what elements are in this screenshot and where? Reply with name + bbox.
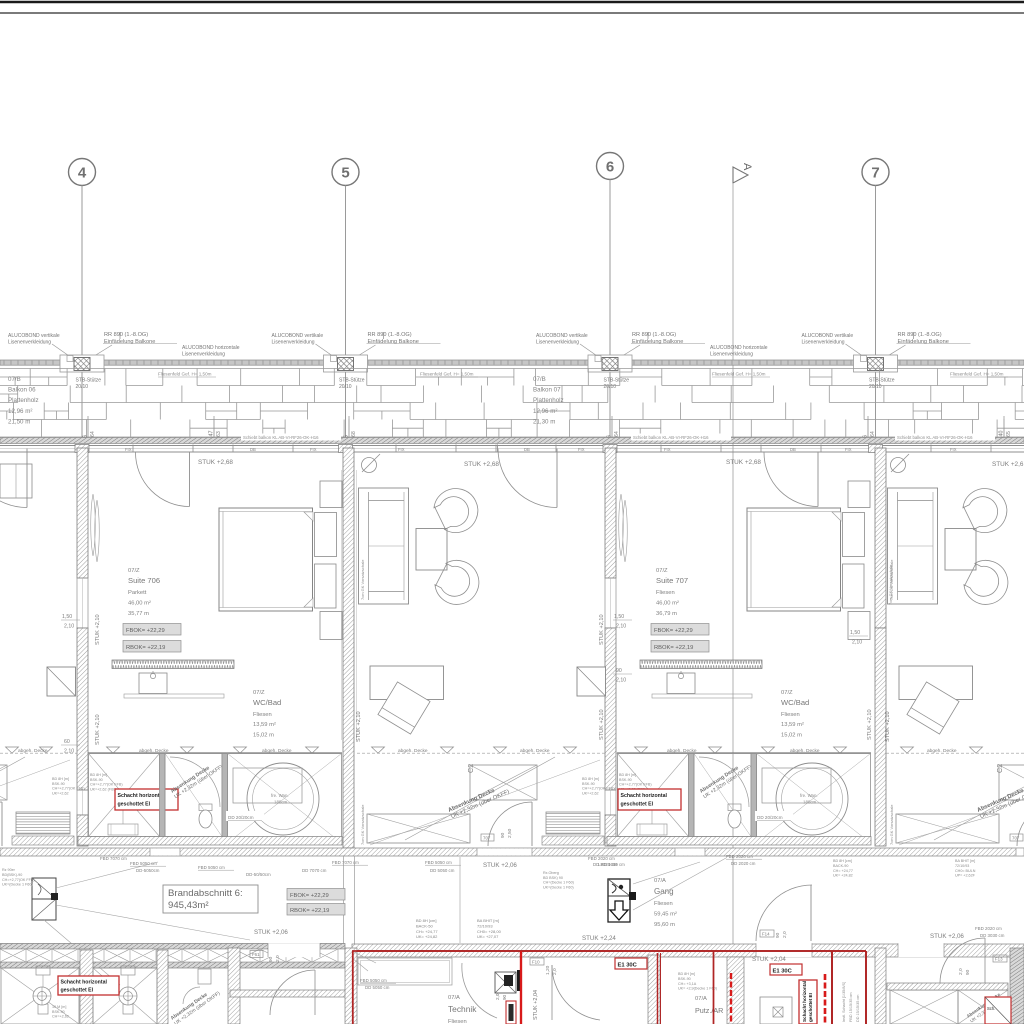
svg-text:07/B: 07/B bbox=[8, 376, 21, 383]
svg-text:Plattenholz: Plattenholz bbox=[8, 397, 39, 404]
svg-text:STUK +2,10: STUK +2,10 bbox=[599, 614, 605, 645]
svg-text:BD 8H [m]: BD 8H [m] bbox=[678, 972, 695, 976]
svg-text:FIX: FIX bbox=[398, 447, 405, 452]
svg-text:UK=+2,62: UK=+2,62 bbox=[582, 791, 599, 795]
svg-text:7cm GK Vorsatzschale: 7cm GK Vorsatzschale bbox=[889, 804, 894, 845]
svg-text:Brandabschnitt 6:: Brandabschnitt 6: bbox=[168, 888, 243, 899]
svg-text:abgeh. Decke: abgeh. Decke bbox=[520, 748, 550, 754]
svg-text:12,96 m²: 12,96 m² bbox=[8, 408, 32, 415]
svg-text:Einfädelung Balkone: Einfädelung Balkone bbox=[632, 339, 683, 345]
svg-text:Schacht horizontal: Schacht horizontal bbox=[621, 793, 668, 799]
svg-text:FBD 5050 cm: FBD 5050 cm bbox=[360, 978, 387, 983]
svg-text:BD 8H [m]: BD 8H [m] bbox=[52, 777, 69, 781]
svg-text:Fliesen: Fliesen bbox=[654, 901, 673, 907]
svg-text:20/10: 20/10 bbox=[339, 384, 352, 390]
svg-text:BD 8H [m]: BD 8H [m] bbox=[619, 773, 636, 777]
svg-text:2,0: 2,0 bbox=[958, 968, 964, 975]
svg-text:abgeh. Decke: abgeh. Decke bbox=[398, 748, 428, 754]
svg-text:Lisenenverkleidung: Lisenenverkleidung bbox=[710, 351, 753, 357]
svg-text:BSK-90: BSK-90 bbox=[678, 977, 691, 981]
svg-text:UK=(Decke 1 F60): UK=(Decke 1 F60) bbox=[543, 885, 574, 889]
svg-text:Lisenenverkleidung: Lisenenverkleidung bbox=[182, 351, 225, 357]
svg-text:DB: DB bbox=[790, 447, 796, 452]
svg-text:07/A: 07/A bbox=[695, 996, 707, 1002]
svg-text:90: 90 bbox=[500, 832, 506, 838]
svg-text:21,50 m: 21,50 m bbox=[8, 418, 30, 425]
svg-text:BSK-90: BSK-90 bbox=[582, 782, 595, 786]
svg-text:Fliesenfeld Gef. H= 1,50m: Fliesenfeld Gef. H= 1,50m bbox=[950, 372, 1004, 377]
svg-text:945,43m²: 945,43m² bbox=[168, 900, 209, 911]
svg-text:UK= +27,07: UK= +27,07 bbox=[477, 934, 499, 939]
svg-text:20/10: 20/10 bbox=[76, 384, 89, 390]
svg-text:CH=(Decke 1 F60): CH=(Decke 1 F60) bbox=[543, 881, 574, 885]
svg-text:UK=+2,62 (F60): UK=+2,62 (F60) bbox=[90, 787, 116, 791]
svg-text:2,10: 2,10 bbox=[852, 640, 862, 646]
svg-text:Einfädelung Balkone: Einfädelung Balkone bbox=[898, 339, 949, 345]
svg-text:Balkon 07: Balkon 07 bbox=[533, 387, 561, 394]
svg-text:DD 5050 cm: DD 5050 cm bbox=[430, 868, 455, 873]
svg-text:STUK +2,10: STUK +2,10 bbox=[867, 709, 873, 740]
svg-text:RBOK= +22,19: RBOK= +22,19 bbox=[654, 645, 693, 651]
svg-text:35,77 m: 35,77 m bbox=[128, 611, 149, 617]
svg-text:20/10: 20/10 bbox=[869, 384, 882, 390]
svg-text:Plattenholz: Plattenholz bbox=[533, 397, 564, 404]
svg-text:FIX: FIX bbox=[950, 447, 957, 452]
svg-text:fre. Wan.: fre. Wan. bbox=[800, 793, 818, 798]
svg-text:BA BHIT [m]: BA BHIT [m] bbox=[477, 918, 499, 923]
svg-text:20/10: 20/10 bbox=[604, 384, 617, 390]
svg-text:2,10: 2,10 bbox=[64, 624, 74, 630]
svg-text:2,10: 2,10 bbox=[616, 678, 626, 684]
svg-text:STUK +2,68: STUK +2,68 bbox=[726, 459, 761, 466]
svg-text:ALUCOBOND horizontale: ALUCOBOND horizontale bbox=[182, 345, 240, 351]
svg-text:07/B: 07/B bbox=[533, 376, 546, 383]
svg-text:BD 8H [m]: BD 8H [m] bbox=[90, 773, 107, 777]
svg-text:CH=+2,77(OK FFB): CH=+2,77(OK FFB) bbox=[619, 783, 652, 787]
svg-text:geschottet EI: geschottet EI bbox=[808, 993, 813, 1022]
svg-text:ALUCOBOND vertikale: ALUCOBOND vertikale bbox=[272, 333, 324, 339]
svg-text:ALUCOBOND horizontale: ALUCOBOND horizontale bbox=[710, 345, 768, 351]
svg-text:2,0: 2,0 bbox=[275, 955, 281, 962]
svg-text:Lisenenverkleidung: Lisenenverkleidung bbox=[802, 339, 845, 345]
svg-text:DD 5050 cm: DD 5050 cm bbox=[365, 985, 390, 990]
svg-text:07/A: 07/A bbox=[654, 878, 666, 884]
svg-text:Schiebt balkon KL AB-VI-RF26-O: Schiebt balkon KL AB-VI-RF26-OK-H16 bbox=[633, 435, 709, 440]
svg-text:07/Z: 07/Z bbox=[253, 690, 265, 696]
svg-text:STB-Stütze: STB-Stütze bbox=[869, 378, 895, 384]
svg-text:FBOK= +22,29: FBOK= +22,29 bbox=[126, 628, 165, 634]
svg-text:2,50: 2,50 bbox=[507, 828, 513, 838]
svg-text:FIX: FIX bbox=[664, 447, 671, 452]
svg-text:STB-Stütze: STB-Stütze bbox=[339, 378, 365, 384]
svg-text:Technik: Technik bbox=[448, 1004, 477, 1014]
svg-text:BD BSK) 90: BD BSK) 90 bbox=[543, 876, 563, 880]
svg-text:FBD 15/15/35 cm: FBD 15/15/35 cm bbox=[849, 992, 853, 1022]
svg-text:FBD 5050 cm: FBD 5050 cm bbox=[130, 861, 157, 866]
svg-text:BACK-50: BACK-50 bbox=[416, 923, 433, 928]
svg-text:RR 890 (1.-8.OG): RR 890 (1.-8.OG) bbox=[104, 332, 148, 338]
svg-text:UK=+2,62: UK=+2,62 bbox=[52, 791, 69, 795]
svg-text:UK= +24,82: UK= +24,82 bbox=[833, 874, 853, 878]
svg-text:12,96 m²: 12,96 m² bbox=[533, 408, 557, 415]
svg-text:Rz 90er: Rz 90er bbox=[2, 868, 16, 872]
svg-text:RBOK= +22,19: RBOK= +22,19 bbox=[290, 908, 329, 914]
svg-text:ALUCOBOND vertikale: ALUCOBOND vertikale bbox=[802, 333, 854, 339]
svg-text:STUK +2,06: STUK +2,06 bbox=[930, 933, 964, 940]
svg-text:Sch.: Sch. bbox=[987, 1006, 995, 1011]
svg-text:FBD 2020 cm: FBD 2020 cm bbox=[726, 854, 753, 859]
svg-text:BSK-90: BSK-90 bbox=[52, 1010, 65, 1014]
svg-text:07/A: 07/A bbox=[448, 995, 460, 1001]
svg-text:CH= +3,1A: CH= +3,1A bbox=[678, 982, 697, 986]
svg-text:RR 890 (1.-8.OG): RR 890 (1.-8.OG) bbox=[898, 332, 942, 338]
svg-text:90: 90 bbox=[775, 932, 781, 938]
svg-text:Fliesen: Fliesen bbox=[253, 712, 272, 718]
svg-text:72/10/93: 72/10/93 bbox=[955, 864, 969, 868]
svg-text:7: 7 bbox=[871, 165, 879, 182]
svg-text:STB-Stütze: STB-Stütze bbox=[76, 378, 102, 384]
svg-text:Suite 707: Suite 707 bbox=[656, 576, 688, 585]
svg-text:DD-50/50cm: DD-50/50cm bbox=[246, 872, 271, 877]
svg-text:36,79 m: 36,79 m bbox=[656, 611, 677, 617]
svg-text:Einfädelung Balkone: Einfädelung Balkone bbox=[368, 339, 419, 345]
svg-text:geschottet EI: geschottet EI bbox=[118, 802, 151, 808]
svg-text:fre. Wan.: fre. Wan. bbox=[271, 793, 289, 798]
svg-text:STB-Stütze: STB-Stütze bbox=[604, 378, 630, 384]
svg-text:15,02 m: 15,02 m bbox=[781, 732, 802, 738]
svg-text:STUK +2,06: STUK +2,06 bbox=[254, 929, 288, 936]
svg-text:Rx.Oberg: Rx.Oberg bbox=[543, 871, 559, 875]
svg-text:CH= +24,77: CH= +24,77 bbox=[833, 869, 853, 873]
svg-text:geschottet EI: geschottet EI bbox=[61, 988, 94, 994]
svg-text:CH=+2,77(OK FFB): CH=+2,77(OK FFB) bbox=[2, 878, 35, 882]
svg-text:FBD 5050 cm: FBD 5050 cm bbox=[198, 865, 225, 870]
svg-text:Fliesenfeld Gef. H= 1,50m: Fliesenfeld Gef. H= 1,50m bbox=[420, 372, 474, 377]
svg-text:CH=+2,62: CH=+2,62 bbox=[52, 1015, 69, 1019]
svg-text:FIX: FIX bbox=[845, 447, 852, 452]
svg-text:BD 8H [cm]: BD 8H [cm] bbox=[833, 859, 852, 863]
svg-text:BSK-90: BSK-90 bbox=[90, 778, 103, 782]
svg-text:WC/Bad: WC/Bad bbox=[253, 698, 281, 707]
svg-text:Fliesen: Fliesen bbox=[448, 1019, 467, 1024]
svg-text:46,00 m²: 46,00 m² bbox=[656, 601, 679, 607]
svg-text:DD 7070 cm: DD 7070 cm bbox=[302, 868, 327, 873]
svg-text:FIX: FIX bbox=[310, 447, 317, 452]
svg-text:2,0: 2,0 bbox=[495, 993, 500, 1000]
svg-text:FBD 7070 cm: FBD 7070 cm bbox=[332, 860, 359, 865]
svg-text:1,50: 1,50 bbox=[614, 614, 624, 620]
svg-text:UK=(Decke 1 F60): UK=(Decke 1 F60) bbox=[2, 883, 33, 887]
svg-text:CH=+2,77(OK FFB): CH=+2,77(OK FFB) bbox=[582, 787, 615, 791]
svg-text:F13: F13 bbox=[995, 957, 1003, 962]
svg-text:RR 890 (1.-8.OG): RR 890 (1.-8.OG) bbox=[632, 332, 676, 338]
svg-text:Schiebt balkon KL AB-VI-RF26-O: Schiebt balkon KL AB-VI-RF26-OK-H16 bbox=[897, 435, 973, 440]
svg-text:STUK +2,68: STUK +2,68 bbox=[198, 459, 233, 466]
svg-text:13,59 m²: 13,59 m² bbox=[253, 722, 276, 728]
svg-text:DD 3030 cm: DD 3030 cm bbox=[980, 933, 1005, 938]
svg-text:2,0: 2,0 bbox=[552, 968, 558, 975]
svg-text:abgeh. Decke: abgeh. Decke bbox=[18, 748, 48, 754]
svg-text:7cm GK Vorsatzschale: 7cm GK Vorsatzschale bbox=[360, 804, 365, 845]
svg-text:Suite 706: Suite 706 bbox=[128, 576, 160, 585]
svg-text:60: 60 bbox=[64, 739, 70, 745]
svg-text:10 M [m]: 10 M [m] bbox=[52, 1005, 66, 1009]
svg-text:STUK +2,10: STUK +2,10 bbox=[885, 711, 891, 742]
svg-text:F61: F61 bbox=[252, 952, 260, 957]
svg-text:707: 707 bbox=[1012, 836, 1020, 841]
svg-text:Schacht horizontal: Schacht horizontal bbox=[118, 793, 165, 799]
svg-text:90: 90 bbox=[965, 969, 971, 975]
svg-text:CH0= BULN: CH0= BULN bbox=[955, 869, 976, 873]
svg-text:2,10: 2,10 bbox=[64, 749, 74, 755]
svg-text:BA BHIT [m]: BA BHIT [m] bbox=[955, 859, 975, 863]
svg-text:46,00 m²: 46,00 m² bbox=[128, 601, 151, 607]
svg-text:90: 90 bbox=[616, 668, 622, 674]
svg-text:RR 890 (1.-8.OG): RR 890 (1.-8.OG) bbox=[368, 332, 412, 338]
svg-text:FBD 5050 cm: FBD 5050 cm bbox=[425, 860, 452, 865]
svg-text:CH=+2,77(OK FFB): CH=+2,77(OK FFB) bbox=[52, 787, 85, 791]
svg-text:DB: DB bbox=[524, 447, 530, 452]
svg-text:BACK-90: BACK-90 bbox=[833, 864, 848, 868]
svg-text:STUK +2,04: STUK +2,04 bbox=[752, 956, 786, 963]
svg-text:6: 6 bbox=[606, 159, 614, 176]
svg-text:Fliesen: Fliesen bbox=[781, 712, 800, 718]
svg-text:90: 90 bbox=[502, 994, 507, 1000]
svg-text:72/10/93: 72/10/93 bbox=[477, 923, 493, 928]
svg-text:ALUCOBOND vertikale: ALUCOBOND vertikale bbox=[536, 333, 588, 339]
svg-text:07/Z: 07/Z bbox=[781, 690, 793, 696]
svg-text:59,45 m²: 59,45 m² bbox=[654, 911, 677, 917]
svg-text:7cm GK Vorsatzschale: 7cm GK Vorsatzschale bbox=[888, 564, 893, 605]
svg-text:STUK +2,10: STUK +2,10 bbox=[95, 714, 101, 745]
svg-text:UK= +2,9(Decke 1 F60): UK= +2,9(Decke 1 F60) bbox=[678, 987, 717, 991]
svg-text:5: 5 bbox=[341, 165, 349, 182]
svg-text:BD(BSK)-90: BD(BSK)-90 bbox=[2, 873, 22, 877]
svg-text:UK= +24,82: UK= +24,82 bbox=[416, 934, 438, 939]
svg-text:FBOK= +22,29: FBOK= +22,29 bbox=[654, 628, 693, 634]
svg-text:Gang: Gang bbox=[654, 887, 674, 896]
svg-text:BD 8H [m]: BD 8H [m] bbox=[582, 777, 599, 781]
svg-text:E1 30C: E1 30C bbox=[618, 963, 638, 969]
svg-text:DD 20/20cm: DD 20/20cm bbox=[757, 815, 783, 820]
svg-text:7cm GK Vorsatzschale: 7cm GK Vorsatzschale bbox=[360, 559, 365, 600]
svg-text:FBD 7070 cm: FBD 7070 cm bbox=[100, 856, 127, 861]
svg-text:Parkett: Parkett bbox=[128, 590, 147, 596]
svg-text:CH=+2,77(OK FFB): CH=+2,77(OK FFB) bbox=[90, 783, 123, 787]
svg-text:DD 2020 cm: DD 2020 cm bbox=[731, 861, 756, 866]
svg-text:UP= +2,62F: UP= +2,62F bbox=[955, 874, 976, 878]
svg-text:F14: F14 bbox=[762, 932, 770, 937]
svg-text:FIX: FIX bbox=[125, 447, 132, 452]
svg-text:95,60 m: 95,60 m bbox=[654, 922, 675, 928]
svg-text:STUK +2,10: STUK +2,10 bbox=[95, 614, 101, 645]
svg-text:WC/Bad: WC/Bad bbox=[781, 698, 809, 707]
svg-text:FBOK= +22,29: FBOK= +22,29 bbox=[290, 893, 329, 899]
svg-text:2,0: 2,0 bbox=[782, 931, 788, 938]
svg-text:Putz./AR: Putz./AR bbox=[695, 1006, 723, 1015]
svg-text:DD 20/20cm: DD 20/20cm bbox=[228, 815, 254, 820]
svg-text:07/Z: 07/Z bbox=[128, 568, 140, 574]
svg-text:21,30 m: 21,30 m bbox=[533, 418, 555, 425]
svg-text:1,50: 1,50 bbox=[850, 630, 860, 636]
svg-text:STUK +2,10: STUK +2,10 bbox=[599, 709, 605, 740]
svg-text:CH= +24,77: CH= +24,77 bbox=[416, 929, 438, 934]
svg-text:abgeh. Decke: abgeh. Decke bbox=[927, 748, 957, 754]
svg-text:Lisenenverkleidung: Lisenenverkleidung bbox=[8, 339, 51, 345]
svg-text:1,20: 1,20 bbox=[545, 965, 551, 975]
svg-text:Balkon 06: Balkon 06 bbox=[8, 387, 36, 394]
svg-text:DD 2020 cm: DD 2020 cm bbox=[593, 862, 618, 867]
svg-text:geschottet EI: geschottet EI bbox=[621, 802, 654, 808]
svg-text:DD-5050cm: DD-5050cm bbox=[136, 868, 160, 873]
svg-text:07/Z: 07/Z bbox=[656, 568, 668, 574]
svg-text:BD 8H [cm]: BD 8H [cm] bbox=[416, 918, 436, 923]
svg-text:STUK +2,04: STUK +2,04 bbox=[533, 990, 539, 1020]
svg-text:1,50: 1,50 bbox=[62, 614, 72, 620]
svg-text:Schiebt balkon KL AB-VI-RF26-O: Schiebt balkon KL AB-VI-RF26-OK-H16 bbox=[243, 435, 319, 440]
svg-text:13,59 m²: 13,59 m² bbox=[781, 722, 804, 728]
svg-text:Fliesenfeld Gef. H= 1,50m: Fliesenfeld Gef. H= 1,50m bbox=[712, 372, 766, 377]
svg-text:FBD 2020 cm: FBD 2020 cm bbox=[975, 926, 1002, 931]
svg-text:CH0= +28,00: CH0= +28,00 bbox=[477, 929, 502, 934]
svg-text:STUK +2,68: STUK +2,68 bbox=[464, 461, 499, 468]
svg-text:180cm: 180cm bbox=[274, 800, 288, 805]
svg-text:Fliesen: Fliesen bbox=[656, 590, 675, 596]
svg-text:BSK-90: BSK-90 bbox=[52, 782, 65, 786]
svg-text:RBOK= +22,19: RBOK= +22,19 bbox=[126, 645, 165, 651]
svg-text:Schacht horizontal: Schacht horizontal bbox=[61, 980, 108, 986]
svg-text:707: 707 bbox=[483, 836, 491, 841]
svg-text:ALUCOBOND vertikale: ALUCOBOND vertikale bbox=[8, 333, 60, 339]
svg-text:2,10: 2,10 bbox=[616, 624, 626, 630]
svg-text:Lisenenverkleidung: Lisenenverkleidung bbox=[272, 339, 315, 345]
svg-text:STUK +2,6: STUK +2,6 bbox=[992, 461, 1024, 468]
svg-text:Schacht horizontal: Schacht horizontal bbox=[802, 981, 807, 1022]
svg-text:Einfädelung Balkone: Einfädelung Balkone bbox=[104, 339, 155, 345]
svg-text:15,02 m: 15,02 m bbox=[253, 732, 274, 738]
svg-text:4: 4 bbox=[78, 165, 87, 182]
svg-text:DB: DB bbox=[250, 447, 256, 452]
svg-text:90: 90 bbox=[268, 956, 274, 962]
svg-text:DD 15/15/35 cm: DD 15/15/35 cm bbox=[856, 995, 860, 1022]
svg-text:FBD 2020 cm: FBD 2020 cm bbox=[588, 856, 615, 861]
svg-text:BSK-90: BSK-90 bbox=[619, 778, 632, 782]
svg-text:STUK +2,24: STUK +2,24 bbox=[582, 935, 616, 942]
svg-text:F10: F10 bbox=[532, 960, 540, 965]
svg-text:STUK +2,06: STUK +2,06 bbox=[483, 862, 517, 869]
svg-text:E1 30C: E1 30C bbox=[773, 969, 793, 975]
svg-text:FIX: FIX bbox=[578, 447, 585, 452]
svg-text:STUK +2,10: STUK +2,10 bbox=[356, 711, 362, 742]
svg-text:Lisenenverkleidung: Lisenenverkleidung bbox=[536, 339, 579, 345]
svg-text:180cm: 180cm bbox=[803, 800, 817, 805]
svg-text:Instl. Schacht [1/35/8/S]: Instl. Schacht [1/35/8/S] bbox=[842, 982, 846, 1022]
svg-text:A: A bbox=[741, 163, 753, 171]
svg-text:Fliesenfeld Gef. H= 1,50m: Fliesenfeld Gef. H= 1,50m bbox=[158, 372, 212, 377]
